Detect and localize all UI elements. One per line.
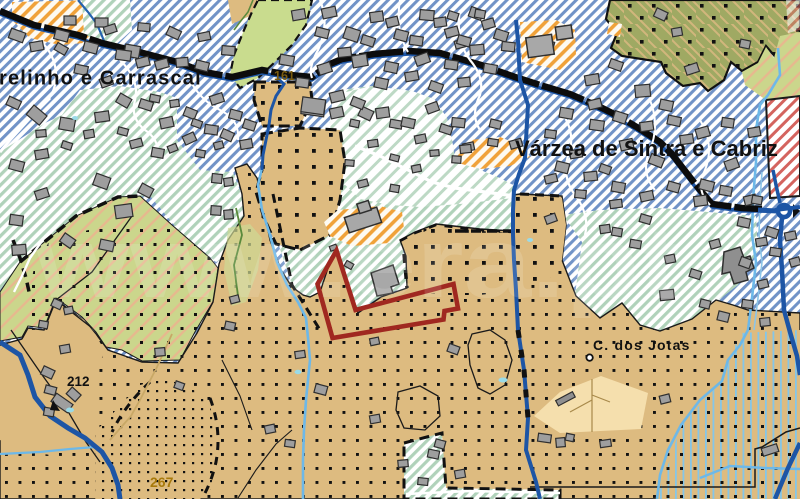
- svg-text:relinho e Carrascal: relinho e Carrascal: [0, 68, 202, 90]
- svg-text:267: 267: [150, 474, 174, 490]
- svg-text:C. dos Jotas: C. dos Jotas: [593, 337, 691, 353]
- svg-text:Várzea de Sintra e Cabriz: Várzea de Sintra e Cabriz: [515, 136, 778, 161]
- svg-text:212: 212: [67, 374, 90, 389]
- svg-text:www.era.pt: www.era.pt: [34, 207, 680, 319]
- svg-text:161: 161: [274, 69, 295, 83]
